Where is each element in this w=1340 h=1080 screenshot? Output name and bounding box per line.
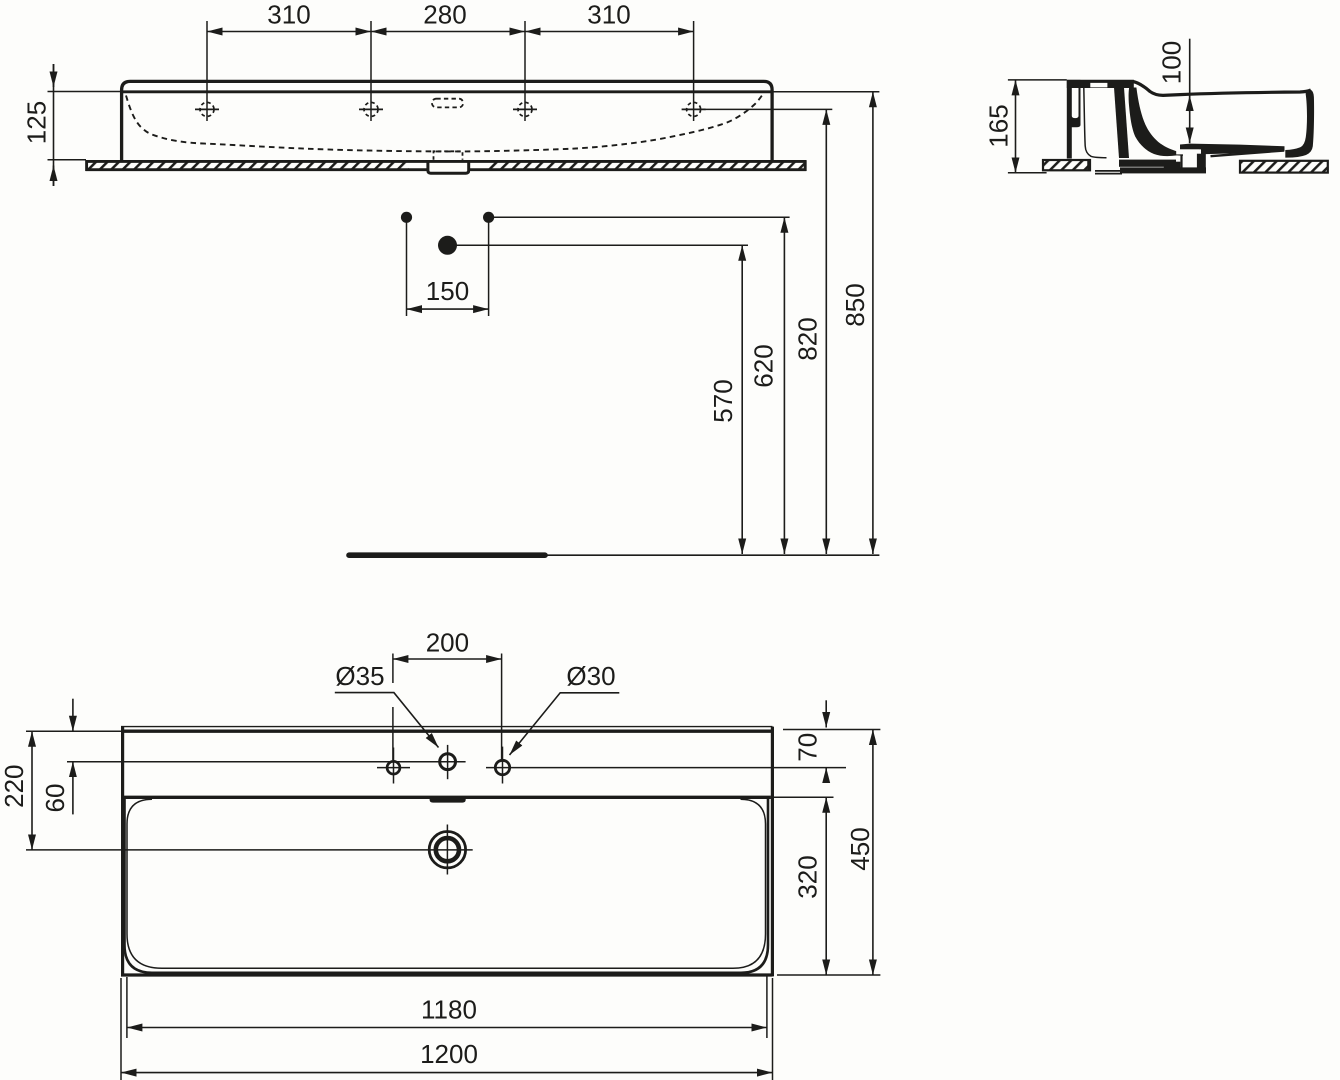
svg-text:125: 125 — [22, 101, 52, 144]
svg-text:1200: 1200 — [420, 1039, 478, 1069]
svg-text:60: 60 — [40, 784, 70, 813]
svg-text:320: 320 — [793, 855, 823, 898]
svg-text:280: 280 — [423, 0, 466, 30]
svg-text:150: 150 — [426, 276, 469, 306]
svg-text:Ø30: Ø30 — [566, 661, 615, 691]
svg-text:70: 70 — [793, 733, 823, 762]
svg-text:850: 850 — [840, 283, 870, 326]
svg-text:1180: 1180 — [421, 995, 477, 1025]
svg-text:450: 450 — [845, 827, 875, 870]
svg-text:620: 620 — [748, 344, 778, 387]
svg-text:220: 220 — [0, 765, 29, 808]
svg-text:Ø35: Ø35 — [335, 661, 384, 691]
svg-text:310: 310 — [267, 0, 310, 30]
svg-text:165: 165 — [984, 104, 1014, 147]
svg-text:200: 200 — [426, 628, 469, 658]
svg-text:570: 570 — [708, 379, 738, 422]
svg-text:310: 310 — [587, 0, 630, 30]
svg-text:100: 100 — [1157, 41, 1187, 84]
svg-text:820: 820 — [793, 317, 823, 360]
